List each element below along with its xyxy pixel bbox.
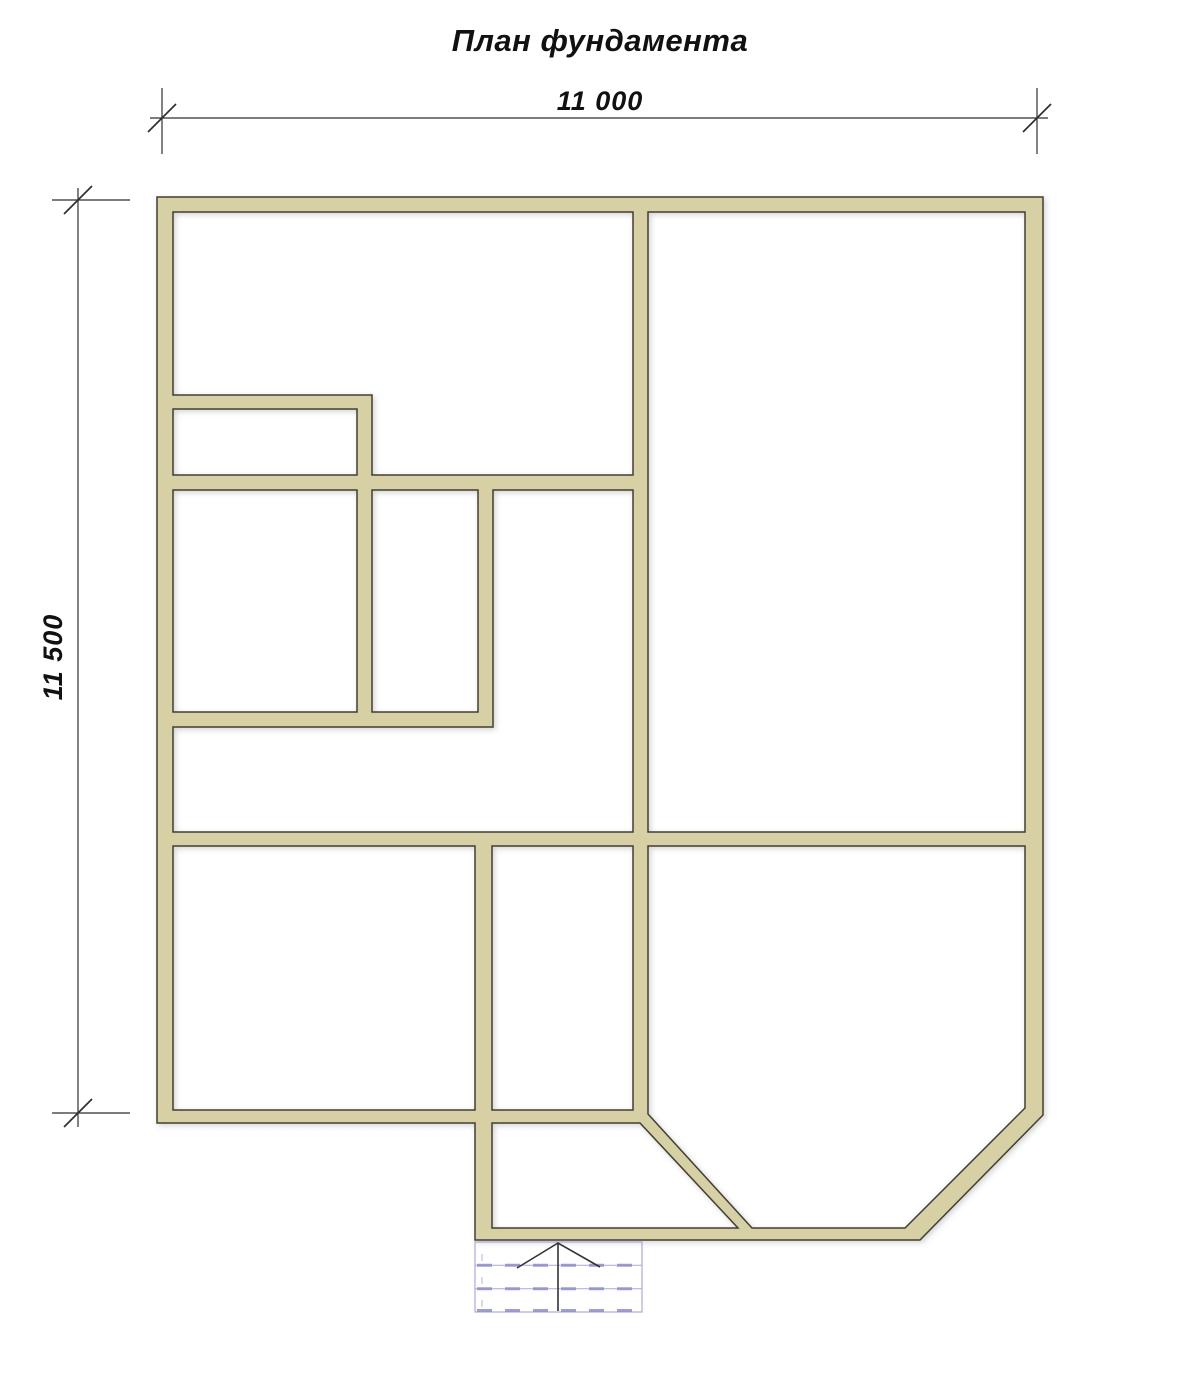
left-dimension-label: 11 500 <box>38 614 68 701</box>
top-dimension-label: 11 000 <box>557 86 644 116</box>
foundation-plan-canvas: План фундамента 11 000 11 500 <box>0 0 1200 1398</box>
foundation-walls <box>157 197 1043 1240</box>
stair-direction-arrow <box>517 1243 600 1311</box>
plan-title: План фундамента <box>452 23 748 58</box>
staircase <box>475 1242 642 1312</box>
foundation-plan-page: План фундамента 11 000 11 500 <box>0 0 1200 1398</box>
left-dimension: 11 500 <box>38 186 130 1127</box>
top-dimension: 11 000 <box>148 86 1051 154</box>
